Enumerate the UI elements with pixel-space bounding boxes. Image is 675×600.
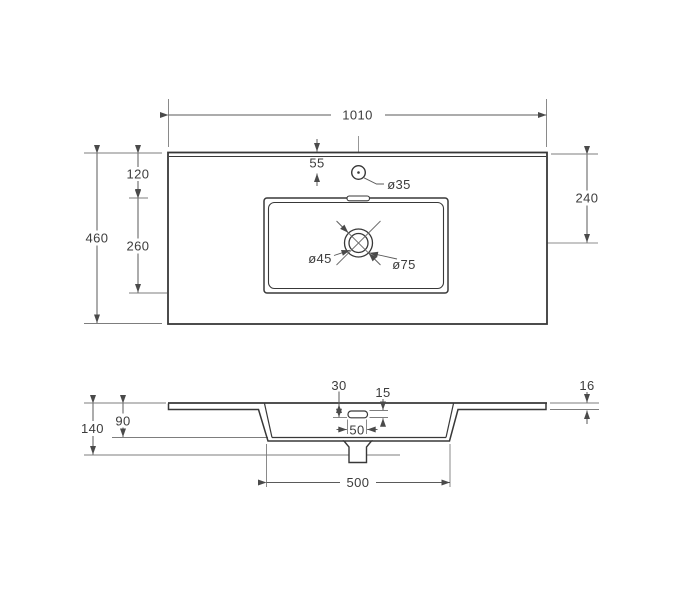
overflow-slot-section bbox=[348, 411, 368, 418]
dim-overall-width: 1010 bbox=[169, 99, 547, 147]
section-view: 30 15 16 90 140 bbox=[76, 378, 599, 490]
dim-overflow-height-label: 15 bbox=[375, 385, 390, 400]
dim-overflow-height: 15 bbox=[370, 385, 391, 426]
dim-basin-front-back: 260 bbox=[121, 199, 167, 294]
dim-back-to-drain: 240 bbox=[551, 154, 604, 243]
label-drain-inner-diameter-text: ø45 bbox=[308, 251, 332, 266]
dim-overflow-width: 50 bbox=[337, 420, 378, 438]
dim-overflow-depth: 30 bbox=[331, 378, 347, 418]
dim-faucet-offset-label: 55 bbox=[309, 155, 324, 170]
dim-slab-thickness-label: 16 bbox=[579, 378, 594, 393]
dim-back-to-basin-label: 120 bbox=[127, 167, 150, 182]
overflow-slot-plan bbox=[347, 196, 370, 201]
dim-overall-depth-label: 460 bbox=[86, 231, 109, 246]
dim-basin-outer-width-label: 500 bbox=[347, 475, 370, 490]
dim-basin-inner-depth-label: 90 bbox=[115, 413, 130, 428]
dim-basin-inner-depth: 90 bbox=[110, 404, 136, 438]
dim-overall-width-label: 1010 bbox=[342, 108, 373, 123]
drain-stub bbox=[344, 441, 372, 463]
dim-slab-thickness: 16 bbox=[550, 378, 599, 424]
dim-back-to-drain-label: 240 bbox=[576, 191, 599, 206]
dim-back-to-basin: 120 bbox=[121, 154, 155, 199]
label-faucet-diameter-text: ø35 bbox=[387, 177, 411, 192]
technical-drawing-canvas: 1010 460 120 260 55 bbox=[0, 0, 675, 600]
dim-total-height: 140 bbox=[76, 404, 110, 455]
dim-total-height-label: 140 bbox=[81, 421, 104, 436]
plan-view: 1010 460 120 260 55 bbox=[80, 99, 604, 324]
faucet-hole-center bbox=[357, 171, 360, 174]
label-drain-outer-diameter-text: ø75 bbox=[392, 257, 416, 272]
dim-overflow-depth-label: 30 bbox=[331, 378, 346, 393]
dim-overflow-width-label: 50 bbox=[349, 422, 364, 437]
washbasin-drawing: 1010 460 120 260 55 bbox=[0, 0, 675, 600]
dim-basin-front-back-label: 260 bbox=[127, 238, 150, 253]
